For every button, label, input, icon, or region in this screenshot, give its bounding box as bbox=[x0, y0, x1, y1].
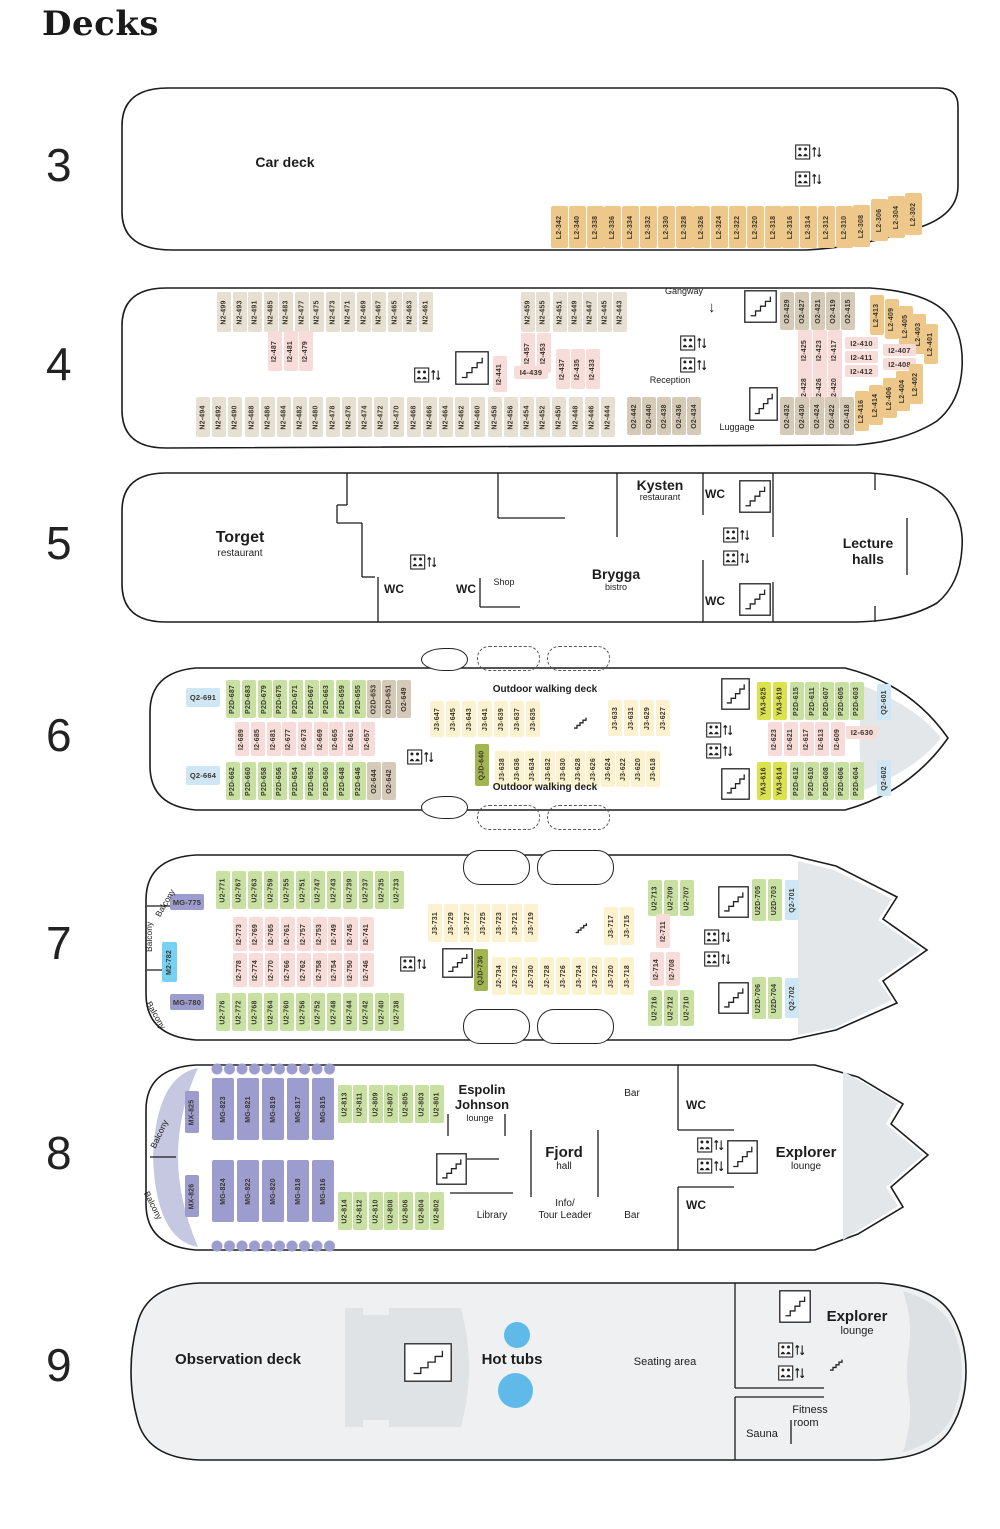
cabin-L2-416: L2-416 bbox=[855, 391, 869, 431]
cabin-number-label: Q2-664 bbox=[190, 771, 216, 780]
cabin-number-label: U2-740 bbox=[379, 1000, 386, 1024]
cabin-Q2-691: Q2-691 bbox=[186, 688, 220, 707]
cabin-number-label: N2-444 bbox=[605, 405, 612, 429]
cabin-N2-472: N2-472 bbox=[374, 397, 388, 437]
cabin-P2D-615: P2D-615 bbox=[790, 682, 804, 720]
cabin-number-label: I2-630 bbox=[851, 728, 873, 737]
cabin-J3-722: J3-722 bbox=[588, 957, 602, 995]
cabin-number-label: U2-771 bbox=[220, 878, 227, 902]
cabin-number-label: N2-459 bbox=[525, 300, 532, 324]
cabin-P2D-610: P2D-610 bbox=[805, 762, 819, 800]
elevator-icon bbox=[795, 171, 822, 188]
cabin-MG-780: MG-780 bbox=[170, 994, 204, 1010]
cabin-J3-721: J3-721 bbox=[508, 904, 522, 942]
cabin-number-label: N2-471 bbox=[345, 300, 352, 324]
cabin-number-label: I2-758 bbox=[317, 959, 324, 980]
cabin-I2-677: I2-677 bbox=[282, 722, 296, 756]
cabin-number-label: N2-446 bbox=[589, 405, 596, 429]
cabin-number-label: L2-328 bbox=[681, 215, 688, 238]
cabin-I2-657: I2-657 bbox=[361, 722, 375, 756]
cabin-number-label: P2D-656 bbox=[277, 766, 284, 795]
cabin-number-label: I2-433 bbox=[590, 358, 597, 379]
cabin-QJD-640: QJD-640 bbox=[475, 744, 489, 786]
cabin-number-label: J3-729 bbox=[448, 912, 455, 935]
cabin-I2-435: I2-435 bbox=[571, 349, 585, 389]
area-label: WC bbox=[686, 1199, 706, 1212]
cabin-number-label: N2-491 bbox=[252, 300, 259, 324]
elevator-icon bbox=[400, 956, 427, 973]
cabin-N2-451: N2-451 bbox=[553, 292, 567, 332]
cabin-MX-826: MX-826 bbox=[185, 1175, 199, 1217]
area-label: restaurant bbox=[217, 549, 262, 560]
cabin-number-label: I2-621 bbox=[788, 728, 795, 749]
area-label: hall bbox=[556, 1162, 572, 1173]
cabin-N2-471: N2-471 bbox=[341, 292, 355, 332]
cabin-number-label: I2-435 bbox=[575, 358, 582, 379]
cabin-number-label: U2-756 bbox=[300, 1000, 307, 1024]
cabin-number-label: QJD-640 bbox=[479, 750, 486, 780]
cabin-N2-488: N2-488 bbox=[245, 397, 259, 437]
cabin-O2-432: O2-432 bbox=[780, 397, 794, 435]
cabin-U2-776: U2-776 bbox=[216, 993, 230, 1031]
cabin-number-label: J3-629 bbox=[644, 707, 651, 730]
cabin-number-label: N2-465 bbox=[392, 300, 399, 324]
cabin-number-label: P2D-615 bbox=[794, 686, 801, 715]
area-label: WC bbox=[705, 595, 725, 608]
cabin-number-label: J3-633 bbox=[612, 707, 619, 730]
cabin-number-label: I2-750 bbox=[348, 959, 355, 980]
cabin-N2-452: N2-452 bbox=[536, 397, 550, 437]
cabin-YA3-614: YA3-614 bbox=[773, 762, 787, 800]
cabin-P2D-662: P2D-662 bbox=[226, 762, 240, 800]
area-label: Hot tubs bbox=[482, 1352, 543, 1368]
cabin-number-label: P2D-662 bbox=[230, 766, 237, 795]
cabin-I2-481: I2-481 bbox=[284, 331, 298, 371]
cabin-N2-490: N2-490 bbox=[228, 397, 242, 437]
area-label: Bar bbox=[624, 1211, 640, 1222]
stairs-icon bbox=[744, 290, 777, 323]
cabin-number-label: I2-441 bbox=[497, 363, 504, 384]
elevator-icon bbox=[697, 1158, 724, 1175]
cabin-L2-405: L2-405 bbox=[899, 306, 913, 346]
cabin-number-label: O2-424 bbox=[814, 404, 821, 429]
cabin-number-label: MG-823 bbox=[220, 1096, 227, 1123]
cabin-I2-661: I2-661 bbox=[345, 722, 359, 756]
cabin-I2-441: I2-441 bbox=[493, 356, 507, 392]
cabin-I2-433: I2-433 bbox=[586, 349, 600, 389]
area-label: Lecture bbox=[843, 536, 894, 551]
cabin-QJD-736: QJD-736 bbox=[474, 949, 488, 991]
cabin-number-label: O2D-653 bbox=[371, 684, 378, 714]
cabin-number-label: L2-403 bbox=[916, 322, 923, 345]
elevator-icon bbox=[414, 367, 441, 384]
cabin-N2-473: N2-473 bbox=[326, 292, 340, 332]
cabin-number-label: O2-415 bbox=[845, 299, 852, 324]
cabin-J3-727: J3-727 bbox=[460, 904, 474, 942]
cabin-number-label: U2-755 bbox=[284, 878, 291, 902]
cabin-number-label: L2-304 bbox=[893, 205, 900, 228]
stairs-icon bbox=[749, 387, 778, 421]
area-label: Explorer bbox=[776, 1145, 837, 1161]
cabin-N2-469: N2-469 bbox=[357, 292, 371, 332]
cabin-number-label: N2-451 bbox=[557, 300, 564, 324]
cabin-number-label: U2-811 bbox=[357, 1092, 364, 1116]
cabin-number-label: J3-717 bbox=[608, 915, 615, 938]
cabin-number-label: J3-718 bbox=[624, 965, 631, 988]
cabin-U2-809: U2-809 bbox=[369, 1085, 383, 1123]
cabin-number-label: N2-454 bbox=[524, 405, 531, 429]
cabin-N2-463: N2-463 bbox=[403, 292, 417, 332]
cabin-number-label: U2D-704 bbox=[772, 983, 779, 1012]
cabin-number-label: MG-815 bbox=[320, 1096, 327, 1123]
cabin-number-label: MG-780 bbox=[173, 998, 201, 1007]
stairs-icon bbox=[718, 886, 749, 918]
cabin-P2D-606: P2D-606 bbox=[835, 762, 849, 800]
elevator-icon bbox=[706, 722, 733, 739]
cabin-number-label: N2-455 bbox=[540, 300, 547, 324]
cabin-U2-710: U2-710 bbox=[680, 990, 694, 1026]
cabin-number-label: L2-338 bbox=[592, 215, 599, 238]
cabin-number-label: P2D-654 bbox=[293, 766, 300, 795]
cabin-U2-735: U2-735 bbox=[375, 871, 389, 909]
cabin-I2-757: I2-757 bbox=[297, 917, 311, 951]
cabin-number-label: Q2-702 bbox=[789, 986, 796, 1011]
cabin-J3-627: J3-627 bbox=[656, 700, 670, 736]
cabin-U2-767: U2-767 bbox=[232, 871, 246, 909]
cabin-number-label: J3-622 bbox=[620, 758, 627, 781]
area-label: Sauna bbox=[746, 1429, 778, 1441]
cabin-J3-725: J3-725 bbox=[476, 904, 490, 942]
area-label: Info/ bbox=[555, 1199, 574, 1210]
cabin-number-label: I2-689 bbox=[239, 728, 246, 749]
cabin-number-label: N2-443 bbox=[617, 300, 624, 324]
cabin-Q2-602: Q2-602 bbox=[877, 760, 891, 796]
cabin-L2-306: L2-306 bbox=[871, 199, 888, 241]
cabin-P2D-603: P2D-603 bbox=[850, 682, 864, 720]
cabin-number-label: MG-775 bbox=[173, 898, 201, 907]
cabin-number-label: MG-817 bbox=[295, 1096, 302, 1123]
cabin-number-label: L2-302 bbox=[910, 202, 917, 225]
cabin-number-label: P2D-608 bbox=[824, 766, 831, 795]
cabin-MG-824: MG-824 bbox=[212, 1160, 234, 1222]
area-label: Shop bbox=[493, 578, 514, 587]
cabin-MG-775: MG-775 bbox=[170, 894, 204, 910]
cabin-number-label: U2-807 bbox=[388, 1092, 395, 1116]
cabin-number-label: L2-402 bbox=[913, 372, 920, 395]
cabin-U2-709: U2-709 bbox=[664, 880, 678, 916]
hot-tub bbox=[504, 1322, 530, 1348]
cabin-P2D-655: P2D-655 bbox=[352, 680, 366, 718]
cabin-I2-762: I2-762 bbox=[297, 953, 311, 987]
cabin-L2-328: L2-328 bbox=[676, 206, 693, 248]
cabin-J3-631: J3-631 bbox=[624, 700, 638, 736]
cabin-U2-801: U2-801 bbox=[430, 1085, 444, 1123]
cabin-I2-623: I2-623 bbox=[768, 722, 782, 756]
cabin-number-label: U2-748 bbox=[331, 1000, 338, 1024]
cabin-L2-340: L2-340 bbox=[569, 206, 586, 248]
cabin-number-label: L2-320 bbox=[752, 215, 759, 238]
cabin-number-label: I2-479 bbox=[303, 340, 310, 361]
cabin-number-label: L2-340 bbox=[574, 215, 581, 238]
cabin-number-label: P2D-663 bbox=[324, 684, 331, 713]
cabin-N2-450: N2-450 bbox=[552, 397, 566, 437]
cabin-U2-712: U2-712 bbox=[664, 990, 678, 1026]
cabin-N2-470: N2-470 bbox=[390, 397, 404, 437]
cabin-J3-624: J3-624 bbox=[601, 751, 615, 787]
deck-9-hull bbox=[903, 1291, 962, 1452]
cabin-number-label: P2D-612 bbox=[794, 766, 801, 795]
cabin-number-label: U2-739 bbox=[347, 878, 354, 902]
cabin-number-label: L2-404 bbox=[900, 379, 907, 402]
cabin-number-label: I2-665 bbox=[333, 728, 340, 749]
cabin-P2D-659: P2D-659 bbox=[336, 680, 350, 718]
cabin-number-label: J3-620 bbox=[635, 758, 642, 781]
cabin-L2-342: L2-342 bbox=[551, 206, 568, 248]
cabin-N2-460: N2-460 bbox=[471, 397, 485, 437]
area-label: Observation deck bbox=[175, 1352, 301, 1368]
cabin-N2-462: N2-462 bbox=[455, 397, 469, 437]
area-label: Tour Leader bbox=[538, 1211, 591, 1222]
cabin-number-label: I2-661 bbox=[349, 728, 356, 749]
cabin-U2-743: U2-743 bbox=[327, 871, 341, 909]
cabin-number-label: N2-456 bbox=[508, 405, 515, 429]
cabin-N2-446: N2-446 bbox=[585, 397, 599, 437]
cabin-J3-622: J3-622 bbox=[616, 751, 630, 787]
cabin-number-label: N2-473 bbox=[330, 300, 337, 324]
cabin-J3-718: J3-718 bbox=[620, 957, 634, 995]
cabin-number-label: MG-821 bbox=[245, 1096, 252, 1123]
area-label: Seating area bbox=[634, 1357, 696, 1369]
elevator-icon bbox=[778, 1342, 805, 1359]
area-label: Balcony bbox=[145, 922, 154, 952]
cabin-number-label: J2-732 bbox=[512, 965, 519, 988]
cabin-number-label: P2D-610 bbox=[809, 766, 816, 795]
cabin-number-label: I2-408 bbox=[888, 360, 910, 369]
cabin-U2-805: U2-805 bbox=[399, 1085, 413, 1123]
cabin-I2-669: I2-669 bbox=[314, 722, 328, 756]
cabin-number-label: L2-406 bbox=[887, 386, 894, 409]
cabin-I2-711: I2-711 bbox=[656, 914, 670, 948]
cabin-O2-427: O2-427 bbox=[795, 292, 809, 330]
cabin-I2-673: I2-673 bbox=[298, 722, 312, 756]
cabin-J3-643: J3-643 bbox=[462, 701, 476, 737]
area-label: Reception bbox=[650, 376, 691, 385]
cabin-number-label: I2-617 bbox=[804, 728, 811, 749]
cabin-MG-815: MG-815 bbox=[312, 1078, 334, 1140]
cabin-O2-642: O2-642 bbox=[382, 762, 396, 800]
cabin-U2-747: U2-747 bbox=[311, 871, 325, 909]
cabin-number-label: I2-761 bbox=[285, 923, 292, 944]
cabin-J3-635: J3-635 bbox=[526, 701, 540, 737]
cabin-P2D-663: P2D-663 bbox=[320, 680, 334, 718]
cabin-number-label: J3-725 bbox=[480, 912, 487, 935]
area-label: Fjord bbox=[545, 1145, 583, 1161]
cabin-number-label: P2D-659 bbox=[340, 684, 347, 713]
cabin-U2-738: U2-738 bbox=[390, 993, 404, 1031]
cabin-O2-440: O2-440 bbox=[642, 397, 656, 435]
cabin-number-label: U2-768 bbox=[252, 1000, 259, 1024]
cabin-U2-744: U2-744 bbox=[343, 993, 357, 1031]
cabin-number-label: J3-635 bbox=[530, 708, 537, 731]
cabin-N2-456: N2-456 bbox=[504, 397, 518, 437]
cabin-number-label: N2-468 bbox=[411, 405, 418, 429]
cabin-U2-804: U2-804 bbox=[415, 1192, 429, 1230]
cabin-number-label: I2-623 bbox=[772, 728, 779, 749]
cabin-MG-821: MG-821 bbox=[237, 1078, 259, 1140]
cabin-L2-332: L2-332 bbox=[640, 206, 657, 248]
cabin-number-label: I2-677 bbox=[286, 728, 293, 749]
stairs-icon bbox=[718, 982, 749, 1014]
cabin-number-label: I2-410 bbox=[850, 339, 872, 348]
cabin-number-label: U2-712 bbox=[668, 996, 675, 1020]
cabin-number-label: I2-673 bbox=[302, 728, 309, 749]
cabin-I2-708: I2-708 bbox=[666, 952, 680, 986]
deck-number-8: 8 bbox=[46, 1130, 72, 1176]
cabin-number-label: N2-482 bbox=[297, 405, 304, 429]
cabin-J3-639: J3-639 bbox=[494, 701, 508, 737]
cabin-O2-649: O2-649 bbox=[397, 680, 411, 718]
area-label: bistro bbox=[605, 583, 627, 592]
cabin-I2-689: I2-689 bbox=[235, 722, 249, 756]
cabin-I2-617: I2-617 bbox=[800, 722, 814, 756]
cabin-U2-807: U2-807 bbox=[384, 1085, 398, 1123]
cabin-P2D-648: P2D-648 bbox=[336, 762, 350, 800]
cabin-number-label: J3-719 bbox=[528, 912, 535, 935]
cabin-number-label: L2-413 bbox=[874, 303, 881, 326]
area-label: Outdoor walking deck bbox=[493, 783, 597, 794]
cabin-number-label: U2-737 bbox=[363, 878, 370, 902]
cabin-U2-768: U2-768 bbox=[248, 993, 262, 1031]
cabin-number-label: U2-744 bbox=[347, 1000, 354, 1024]
cabin-I2-770: I2-770 bbox=[265, 953, 279, 987]
cabin-L2-302: L2-302 bbox=[905, 193, 922, 235]
cabin-N2-459: N2-459 bbox=[521, 292, 535, 332]
deck-7-hull bbox=[798, 861, 921, 1035]
cabin-N2-468: N2-468 bbox=[407, 397, 421, 437]
cabin-number-label: O2-649 bbox=[401, 687, 408, 712]
cabin-N2-486: N2-486 bbox=[261, 397, 275, 437]
stairs-icon bbox=[570, 714, 590, 732]
cabin-number-label: N2-466 bbox=[427, 405, 434, 429]
cabin-number-label: J3-626 bbox=[590, 758, 597, 781]
cabin-U2-806: U2-806 bbox=[399, 1192, 413, 1230]
cabin-J3-645: J3-645 bbox=[446, 701, 460, 737]
cabin-number-label: I2-487 bbox=[272, 340, 279, 361]
cabin-number-label: U2D-706 bbox=[756, 983, 763, 1012]
cabin-I2-487: I2-487 bbox=[268, 331, 282, 371]
cabin-number-label: P2D-605 bbox=[839, 686, 846, 715]
cabin-P2D-660: P2D-660 bbox=[242, 762, 256, 800]
area-label: WC bbox=[705, 488, 725, 501]
cabin-number-label: N2-499 bbox=[221, 300, 228, 324]
cabin-N2-444: N2-444 bbox=[601, 397, 615, 437]
cabin-number-label: N2-458 bbox=[492, 405, 499, 429]
elevator-icon bbox=[706, 743, 733, 760]
cabin-O2-442: O2-442 bbox=[627, 397, 641, 435]
cabin-I2-745: I2-745 bbox=[344, 917, 358, 951]
stairs-icon bbox=[572, 920, 590, 936]
cabin-N2-478: N2-478 bbox=[326, 397, 340, 437]
cabin-P2D-687: P2D-687 bbox=[226, 680, 240, 718]
cabin-number-label: U2-710 bbox=[684, 996, 691, 1020]
cabin-number-label: J3-631 bbox=[628, 707, 635, 730]
cabin-number-label: I2-423 bbox=[817, 339, 824, 360]
stairs-icon bbox=[721, 678, 750, 710]
cabin-I2-761: I2-761 bbox=[281, 917, 295, 951]
cabin-number-label: I2-753 bbox=[317, 923, 324, 944]
cabin-N2-458: N2-458 bbox=[488, 397, 502, 437]
cabin-number-label: U2-760 bbox=[284, 1000, 291, 1024]
cabin-number-label: O2-430 bbox=[799, 404, 806, 429]
deck-8-hull bbox=[843, 1071, 923, 1240]
cabin-O2-418: O2-418 bbox=[840, 397, 854, 435]
cabin-L2-401: L2-401 bbox=[924, 324, 938, 364]
cabin-number-label: U2-763 bbox=[252, 878, 259, 902]
cabin-I2-609: I2-609 bbox=[831, 722, 845, 756]
cabin-J3-641: J3-641 bbox=[478, 701, 492, 737]
cabin-I2-753: I2-753 bbox=[313, 917, 327, 951]
cabin-J3-647: J3-647 bbox=[430, 701, 444, 737]
cabin-number-label: N2-469 bbox=[361, 300, 368, 324]
cabin-P2D-611: P2D-611 bbox=[805, 682, 819, 720]
balcony-scallop-edge bbox=[211, 1240, 335, 1252]
cabin-U2-802: U2-802 bbox=[430, 1192, 444, 1230]
cabin-N2-465: N2-465 bbox=[388, 292, 402, 332]
cabin-number-label: P2D-648 bbox=[340, 766, 347, 795]
cabin-U2-771: U2-771 bbox=[216, 871, 230, 909]
cabin-number-label: P2D-606 bbox=[839, 766, 846, 795]
cabin-J3-637: J3-637 bbox=[510, 701, 524, 737]
cabin-number-label: I2-708 bbox=[670, 958, 677, 979]
cabin-number-label: P2D-683 bbox=[246, 684, 253, 713]
cabin-N2-476: N2-476 bbox=[342, 397, 356, 437]
cabin-number-label: U2-713 bbox=[652, 886, 659, 910]
cabin-O2-421: O2-421 bbox=[811, 292, 825, 330]
cabin-N2-483: N2-483 bbox=[279, 292, 293, 332]
cabin-P2D-607: P2D-607 bbox=[820, 682, 834, 720]
cabin-number-label: N2-461 bbox=[423, 300, 430, 324]
cabin-I2-750: I2-750 bbox=[344, 953, 358, 987]
cabin-number-label: N2-483 bbox=[283, 300, 290, 324]
cabin-number-label: P2D-658 bbox=[262, 766, 269, 795]
cabin-J3-731: J3-731 bbox=[428, 904, 442, 942]
cabin-number-label: J2-728 bbox=[544, 965, 551, 988]
cabin-number-label: N2-475 bbox=[314, 300, 321, 324]
cabin-number-label: O2-442 bbox=[631, 404, 638, 429]
cabin-number-label: L2-401 bbox=[928, 332, 935, 355]
cabin-U2-716: U2-716 bbox=[648, 990, 662, 1026]
cabin-number-label: J3-715 bbox=[624, 915, 631, 938]
cabin-U2-739: U2-739 bbox=[343, 871, 357, 909]
cabin-number-label: L2-312 bbox=[823, 215, 830, 238]
cabin-P2D-612: P2D-612 bbox=[790, 762, 804, 800]
cabin-number-label: U2-751 bbox=[300, 878, 307, 902]
cabin-number-label: L2-316 bbox=[787, 215, 794, 238]
lifeboat bbox=[421, 796, 468, 819]
cabin-number-label: L2-334 bbox=[627, 215, 634, 238]
cabin-number-label: I2-714 bbox=[654, 958, 661, 979]
cabin-P2D-604: P2D-604 bbox=[850, 762, 864, 800]
cabin-number-label: I2-773 bbox=[237, 923, 244, 944]
cabin-U2-814: U2-814 bbox=[338, 1192, 352, 1230]
cabin-Q2-601: Q2-601 bbox=[877, 684, 891, 720]
cabin-L2-409: L2-409 bbox=[885, 299, 899, 339]
area-label: lounge bbox=[840, 1326, 873, 1338]
cabin-L2-402: L2-402 bbox=[909, 364, 923, 404]
cabin-P2D-671: P2D-671 bbox=[289, 680, 303, 718]
cabin-number-label: I2-417 bbox=[832, 339, 839, 360]
cabin-U2-772: U2-772 bbox=[232, 993, 246, 1031]
